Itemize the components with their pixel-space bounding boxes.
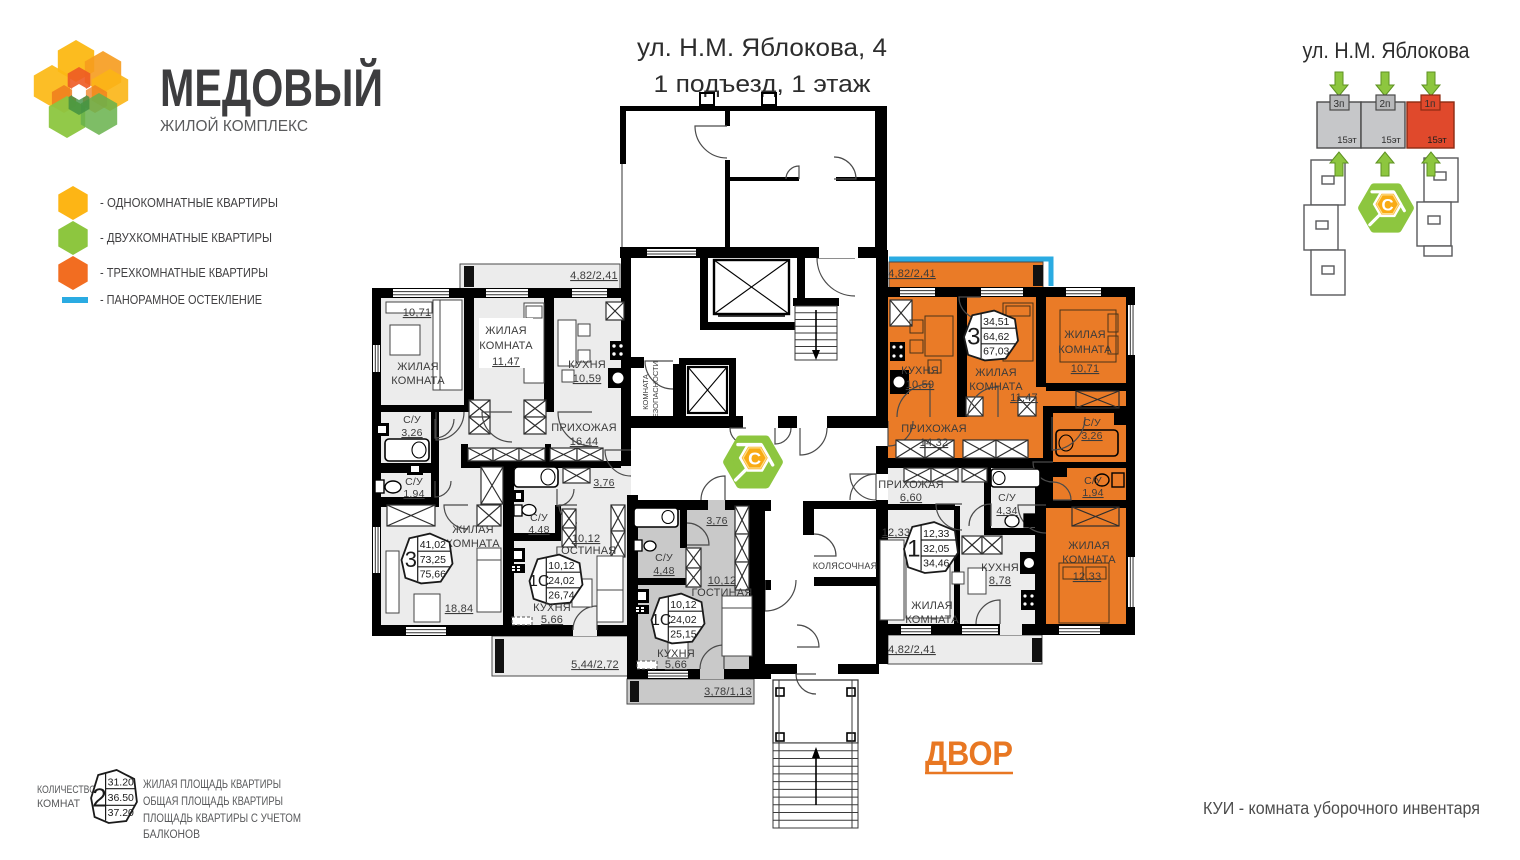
svg-text:ОБЩАЯ ПЛОЩАДЬ КВАРТИРЫ: ОБЩАЯ ПЛОЩАДЬ КВАРТИРЫ	[143, 796, 283, 808]
svg-text:10,59: 10,59	[906, 379, 935, 391]
svg-text:73,25: 73,25	[420, 554, 446, 566]
svg-text:КОМНАТА: КОМНАТА	[391, 375, 445, 387]
svg-text:3: 3	[405, 547, 417, 572]
svg-text:10,12: 10,12	[572, 533, 601, 545]
svg-text:4,48: 4,48	[653, 565, 674, 577]
svg-text:- ДВУХКОМНАТНЫЕ КВАРТИРЫ: - ДВУХКОМНАТНЫЕ КВАРТИРЫ	[100, 230, 272, 245]
svg-text:15эт: 15эт	[1381, 135, 1401, 146]
svg-text:ЖИЛАЯ ПЛОЩАДЬ КВАРТИРЫ: ЖИЛАЯ ПЛОЩАДЬ КВАРТИРЫ	[143, 779, 281, 791]
svg-text:ЖИЛАЯ: ЖИЛАЯ	[911, 600, 953, 612]
svg-text:11,47: 11,47	[492, 356, 520, 368]
svg-text:C: C	[748, 449, 761, 469]
svg-text:С/У: С/У	[405, 476, 423, 488]
svg-text:75,66: 75,66	[420, 568, 446, 580]
svg-text:С/У: С/У	[1083, 417, 1101, 429]
svg-text:С/У: С/У	[403, 414, 421, 426]
svg-text:5,66: 5,66	[665, 659, 687, 671]
svg-text:36.50: 36.50	[108, 792, 134, 804]
svg-text:4,48: 4,48	[528, 524, 549, 536]
svg-text:1,94: 1,94	[1082, 487, 1103, 499]
svg-text:ПРИХОЖАЯ: ПРИХОЖАЯ	[901, 423, 966, 435]
svg-text:10,59: 10,59	[573, 373, 602, 385]
svg-text:10,71: 10,71	[403, 307, 432, 319]
svg-text:БАЛКОНОВ: БАЛКОНОВ	[143, 829, 200, 841]
svg-text:2п: 2п	[1380, 99, 1391, 110]
svg-text:12,33: 12,33	[882, 527, 911, 539]
svg-text:8,78: 8,78	[989, 575, 1011, 587]
svg-text:37.20: 37.20	[108, 807, 134, 819]
svg-text:4,34: 4,34	[996, 505, 1017, 517]
svg-text:ЖИЛАЯ: ЖИЛАЯ	[397, 361, 439, 373]
svg-text:26,74: 26,74	[548, 589, 574, 601]
svg-text:С/У: С/У	[530, 512, 548, 524]
svg-text:- ОДНОКОМНАТНЫЕ КВАРТИРЫ: - ОДНОКОМНАТНЫЕ КВАРТИРЫ	[100, 195, 278, 210]
svg-text:31.20: 31.20	[108, 777, 134, 789]
svg-text:10,12: 10,12	[708, 575, 737, 587]
svg-text:10,12: 10,12	[548, 560, 574, 572]
svg-text:34,51: 34,51	[983, 316, 1009, 328]
svg-text:14,32: 14,32	[920, 437, 949, 449]
svg-text:5,44/2,72: 5,44/2,72	[571, 659, 619, 671]
svg-text:12,33: 12,33	[923, 528, 949, 540]
svg-text:ул. Н.М. Яблокова, 4: ул. Н.М. Яблокова, 4	[637, 34, 887, 62]
svg-text:1С: 1С	[529, 573, 549, 590]
svg-text:ул. Н.М. Яблокова: ул. Н.М. Яблокова	[1303, 38, 1471, 63]
svg-text:КУХНЯ: КУХНЯ	[533, 602, 571, 614]
svg-text:ЖИЛОЙ КОМПЛЕКС: ЖИЛОЙ КОМПЛЕКС	[160, 117, 308, 135]
svg-text:КОМНАТА: КОМНАТА	[905, 614, 959, 626]
svg-text:C: C	[1381, 195, 1393, 214]
svg-text:КОМНАТ: КОМНАТ	[37, 798, 80, 810]
svg-text:3,76: 3,76	[593, 477, 614, 489]
svg-text:ЖИЛАЯ: ЖИЛАЯ	[1064, 329, 1106, 341]
svg-text:15эт: 15эт	[1427, 135, 1447, 146]
svg-text:ДВОР: ДВОР	[925, 735, 1013, 773]
svg-text:3,26: 3,26	[401, 427, 422, 439]
svg-text:1: 1	[907, 536, 920, 563]
svg-text:ПРИХОЖАЯ: ПРИХОЖАЯ	[551, 422, 616, 434]
svg-text:3,26: 3,26	[1081, 430, 1102, 442]
svg-text:КОМНАТА: КОМНАТА	[446, 538, 500, 550]
svg-text:ЖИЛАЯ: ЖИЛАЯ	[1068, 540, 1110, 552]
svg-text:25,15: 25,15	[670, 628, 696, 640]
svg-text:2: 2	[92, 782, 106, 812]
svg-text:4,82/2,41: 4,82/2,41	[570, 270, 618, 282]
svg-text:10,12: 10,12	[670, 599, 696, 611]
svg-text:3п: 3п	[1334, 99, 1345, 110]
svg-text:БЕЗОПАСНОСТИ: БЕЗОПАСНОСТИ	[651, 361, 660, 423]
svg-text:11,47: 11,47	[1010, 392, 1038, 404]
svg-text:КОМНАТА: КОМНАТА	[479, 340, 533, 352]
svg-text:С/У: С/У	[998, 492, 1016, 504]
svg-text:С/У: С/У	[1084, 475, 1102, 487]
svg-text:18,84: 18,84	[445, 603, 474, 615]
svg-text:1п: 1п	[1425, 99, 1436, 110]
svg-text:КОМНАТА: КОМНАТА	[641, 374, 650, 410]
svg-text:3,76: 3,76	[706, 515, 727, 527]
svg-text:64,62: 64,62	[983, 331, 1009, 343]
svg-text:3: 3	[967, 324, 980, 351]
svg-text:24,02: 24,02	[670, 614, 696, 626]
svg-text:4,82/2,41: 4,82/2,41	[888, 268, 936, 280]
svg-text:КОЛИЧЕСТВО: КОЛИЧЕСТВО	[37, 784, 96, 796]
svg-text:ПРИХОЖАЯ: ПРИХОЖАЯ	[878, 479, 943, 491]
svg-text:1,94: 1,94	[403, 488, 424, 500]
svg-text:КУХНЯ: КУХНЯ	[568, 359, 606, 371]
svg-text:КУИ - комната уборочного инвен: КУИ - комната уборочного инвентаря	[1203, 798, 1480, 818]
svg-text:34,46: 34,46	[923, 558, 949, 570]
svg-text:ЖИЛАЯ: ЖИЛАЯ	[452, 524, 494, 536]
svg-text:- ПАНОРАМНОЕ ОСТЕКЛЕНИЕ: - ПАНОРАМНОЕ ОСТЕКЛЕНИЕ	[100, 292, 262, 307]
svg-text:ЖИЛАЯ: ЖИЛАЯ	[485, 325, 527, 337]
svg-text:67,03: 67,03	[983, 345, 1009, 357]
svg-text:МЕДОВЫЙ: МЕДОВЫЙ	[160, 57, 383, 118]
svg-text:ПЛОЩАДЬ КВАРТИРЫ С УЧЕТОМ: ПЛОЩАДЬ КВАРТИРЫ С УЧЕТОМ	[143, 813, 301, 825]
svg-text:КУХНЯ: КУХНЯ	[901, 365, 939, 377]
svg-text:1С: 1С	[651, 612, 671, 629]
svg-text:3,78/1,13: 3,78/1,13	[704, 686, 752, 698]
svg-text:КУХНЯ: КУХНЯ	[981, 562, 1019, 574]
svg-text:24,02: 24,02	[548, 575, 574, 587]
svg-text:15эт: 15эт	[1337, 135, 1357, 146]
svg-text:41,02: 41,02	[420, 539, 446, 551]
svg-text:КОМНАТА: КОМНАТА	[1062, 554, 1116, 566]
svg-text:12,33: 12,33	[1073, 571, 1102, 583]
svg-text:С/У: С/У	[655, 552, 673, 564]
svg-text:4,82/2,41: 4,82/2,41	[888, 644, 936, 656]
svg-text:16,44: 16,44	[570, 436, 599, 448]
svg-text:10,71: 10,71	[1071, 363, 1100, 375]
svg-text:6,60: 6,60	[900, 492, 922, 504]
svg-text:КОЛЯСОЧНАЯ: КОЛЯСОЧНАЯ	[813, 561, 878, 571]
svg-text:КОМНАТА: КОМНАТА	[1058, 344, 1112, 356]
svg-text:ГОСТИНАЯ: ГОСТИНАЯ	[692, 587, 753, 599]
svg-text:ГОСТИНАЯ: ГОСТИНАЯ	[556, 545, 617, 557]
svg-text:ЖИЛАЯ: ЖИЛАЯ	[975, 367, 1017, 379]
svg-text:32,05: 32,05	[923, 543, 949, 555]
svg-text:5,66: 5,66	[541, 614, 563, 626]
svg-text:- ТРЕХКОМНАТНЫЕ КВАРТИРЫ: - ТРЕХКОМНАТНЫЕ КВАРТИРЫ	[100, 265, 268, 280]
